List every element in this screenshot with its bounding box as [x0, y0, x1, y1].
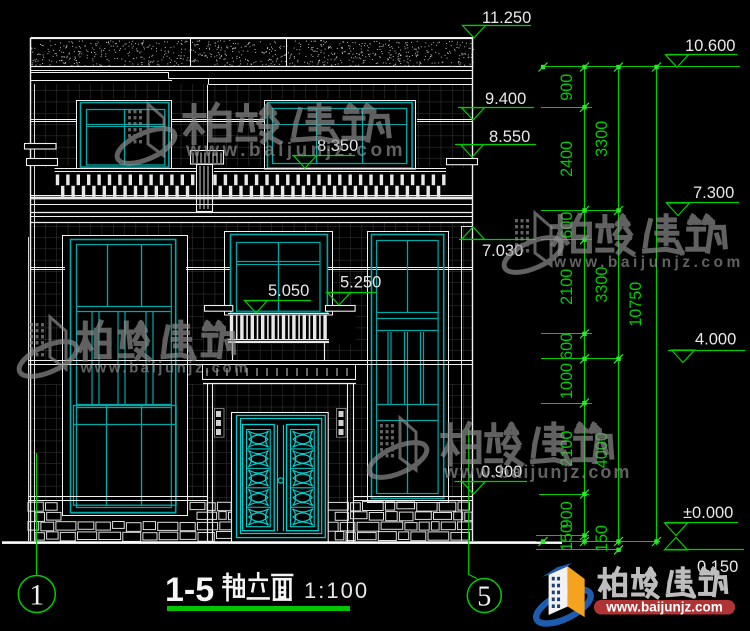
svg-text:±0.000: ±0.000 [683, 504, 733, 522]
svg-text:www.baijunjz.com: www.baijunjz.com [80, 360, 250, 377]
svg-text:www.baijunjz.com: www.baijunjz.com [443, 462, 631, 482]
svg-text:600: 600 [558, 333, 576, 360]
svg-text:1:100: 1:100 [304, 578, 369, 603]
svg-text:5.050: 5.050 [268, 282, 309, 300]
svg-text:www.baijunjz.com: www.baijunjz.com [185, 140, 406, 161]
svg-text:1: 1 [29, 579, 44, 612]
svg-text:900: 900 [558, 74, 576, 101]
svg-text:3300: 3300 [593, 121, 611, 157]
svg-text:9.400: 9.400 [485, 90, 526, 108]
svg-text:8.550: 8.550 [489, 128, 530, 146]
svg-text:2400: 2400 [558, 141, 576, 177]
svg-text:www.baijunjz.com: www.baijunjz.com [605, 600, 723, 615]
svg-text:1000: 1000 [558, 363, 576, 399]
svg-text:1-5: 1-5 [165, 571, 214, 609]
svg-text:150: 150 [593, 525, 611, 552]
svg-text:4.000: 4.000 [695, 331, 736, 349]
svg-text:10750: 10750 [627, 282, 645, 327]
svg-text:5.250: 5.250 [340, 274, 381, 292]
svg-text:www.baijunjz.com: www.baijunjz.com [553, 254, 744, 271]
svg-text:11.250: 11.250 [482, 9, 531, 27]
svg-text:7.300: 7.300 [693, 184, 734, 202]
svg-text:2100: 2100 [558, 269, 576, 305]
svg-text:5: 5 [477, 582, 491, 613]
svg-text:3300: 3300 [593, 267, 611, 303]
svg-text:10.600: 10.600 [685, 37, 735, 55]
svg-text:150: 150 [558, 524, 576, 551]
